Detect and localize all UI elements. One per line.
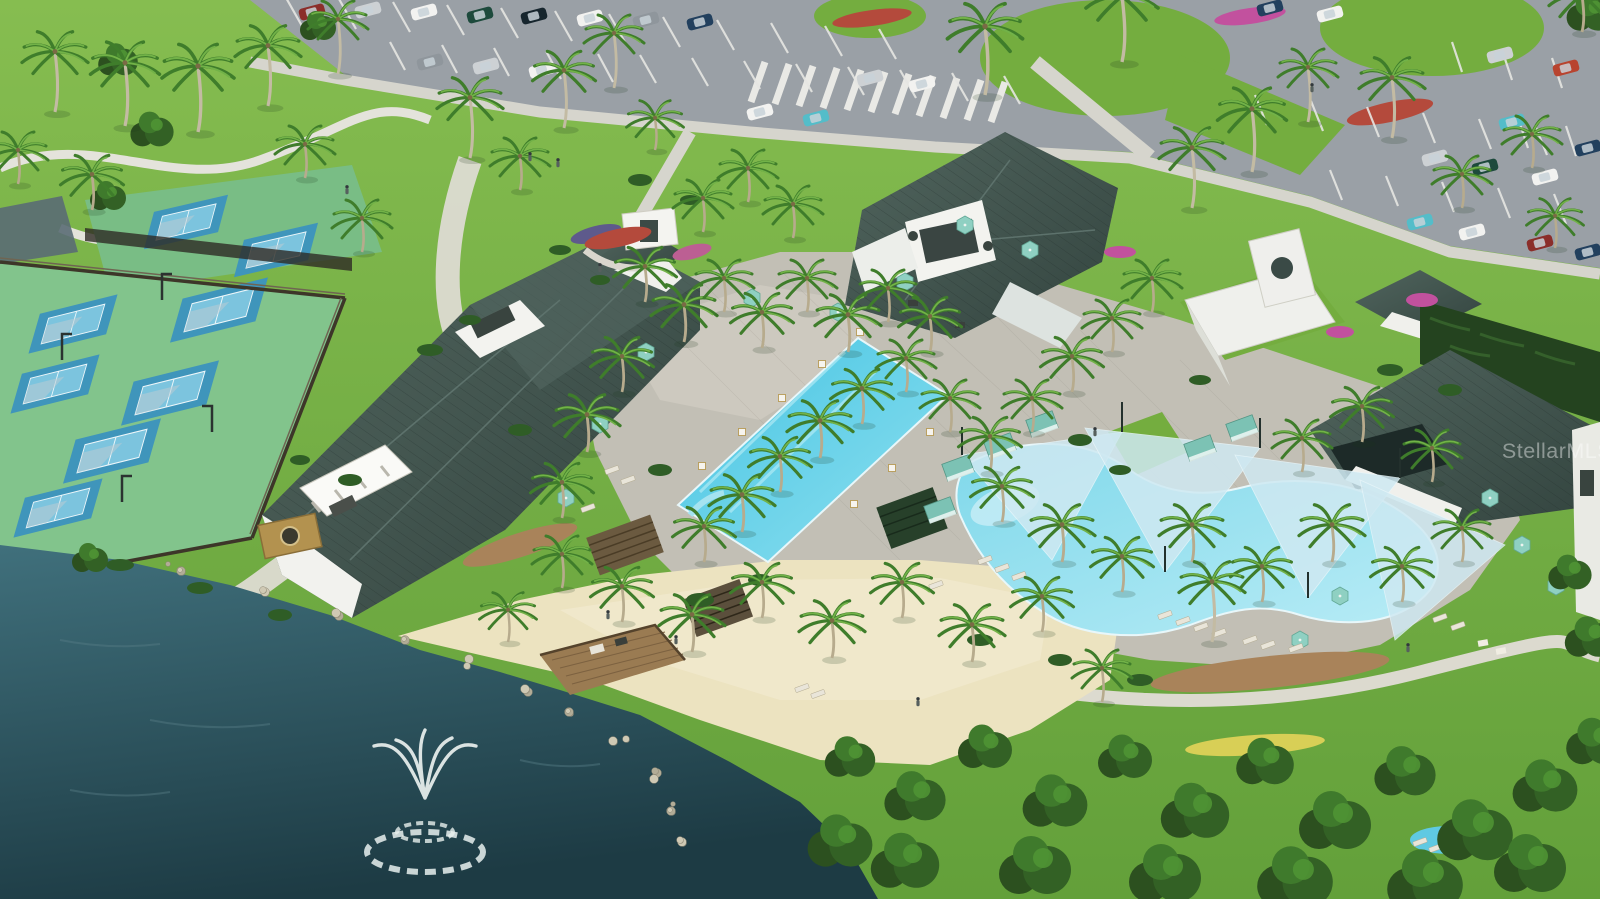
- teal-umbrella: [1482, 489, 1498, 507]
- round-vent: [983, 241, 993, 251]
- pool-column: [739, 429, 746, 436]
- shrub: [628, 174, 652, 186]
- shrub: [290, 455, 310, 465]
- pool-column: [927, 429, 934, 436]
- teal-umbrella: [1514, 536, 1530, 554]
- person: [1093, 427, 1096, 436]
- bar-furniture: [908, 300, 918, 306]
- shrub: [648, 464, 672, 476]
- shrub: [1048, 654, 1072, 666]
- person: [556, 158, 559, 167]
- pool-column: [819, 361, 826, 368]
- round-vent: [908, 231, 918, 241]
- shrub: [417, 344, 443, 356]
- rock: [566, 709, 571, 714]
- teal-umbrella: [957, 216, 973, 234]
- bougainvillea: [1406, 293, 1438, 307]
- rock: [609, 737, 618, 746]
- rock: [668, 808, 673, 813]
- person: [674, 635, 677, 644]
- rock: [260, 587, 267, 594]
- shrub: [338, 474, 362, 486]
- shrub: [187, 582, 213, 594]
- rock: [521, 685, 530, 694]
- rock: [178, 568, 183, 573]
- shrub: [268, 609, 292, 621]
- rock: [465, 655, 474, 664]
- rock: [650, 775, 659, 784]
- shrub: [1438, 384, 1462, 396]
- person: [528, 152, 531, 161]
- bougainvillea: [1326, 326, 1354, 338]
- shrub: [459, 315, 481, 325]
- shrub: [1068, 434, 1092, 446]
- pool-column: [779, 395, 786, 402]
- bougainvillea: [1104, 246, 1136, 258]
- person: [1310, 83, 1313, 92]
- pool-column: [699, 463, 706, 470]
- shrub: [590, 275, 610, 285]
- pool-column: [889, 465, 896, 472]
- person: [606, 610, 609, 619]
- shrub: [508, 424, 532, 436]
- rock: [671, 802, 676, 807]
- aerial-rendering-svg: StellarMLS: [0, 0, 1600, 899]
- teal-umbrella: [1332, 587, 1348, 605]
- shrub: [1377, 364, 1403, 376]
- rock: [677, 837, 684, 844]
- watermark: StellarMLS: [1502, 439, 1600, 463]
- shrub: [1189, 375, 1211, 385]
- pool-column: [851, 501, 858, 508]
- teal-umbrella: [1022, 241, 1038, 259]
- rock: [166, 562, 171, 567]
- person: [598, 263, 601, 272]
- right-edge-window: [1580, 470, 1594, 496]
- person: [345, 185, 348, 194]
- rock: [464, 663, 471, 670]
- rock: [402, 637, 407, 642]
- kiosk-logo-circle: [1271, 257, 1293, 279]
- shrub: [1109, 465, 1131, 475]
- shrub: [106, 559, 134, 571]
- person: [1406, 643, 1409, 652]
- rock: [623, 736, 630, 743]
- rock: [332, 609, 341, 618]
- rock: [652, 768, 659, 775]
- shrub: [549, 245, 571, 255]
- aerial-rendering: StellarMLS: [0, 0, 1600, 899]
- person: [916, 697, 919, 706]
